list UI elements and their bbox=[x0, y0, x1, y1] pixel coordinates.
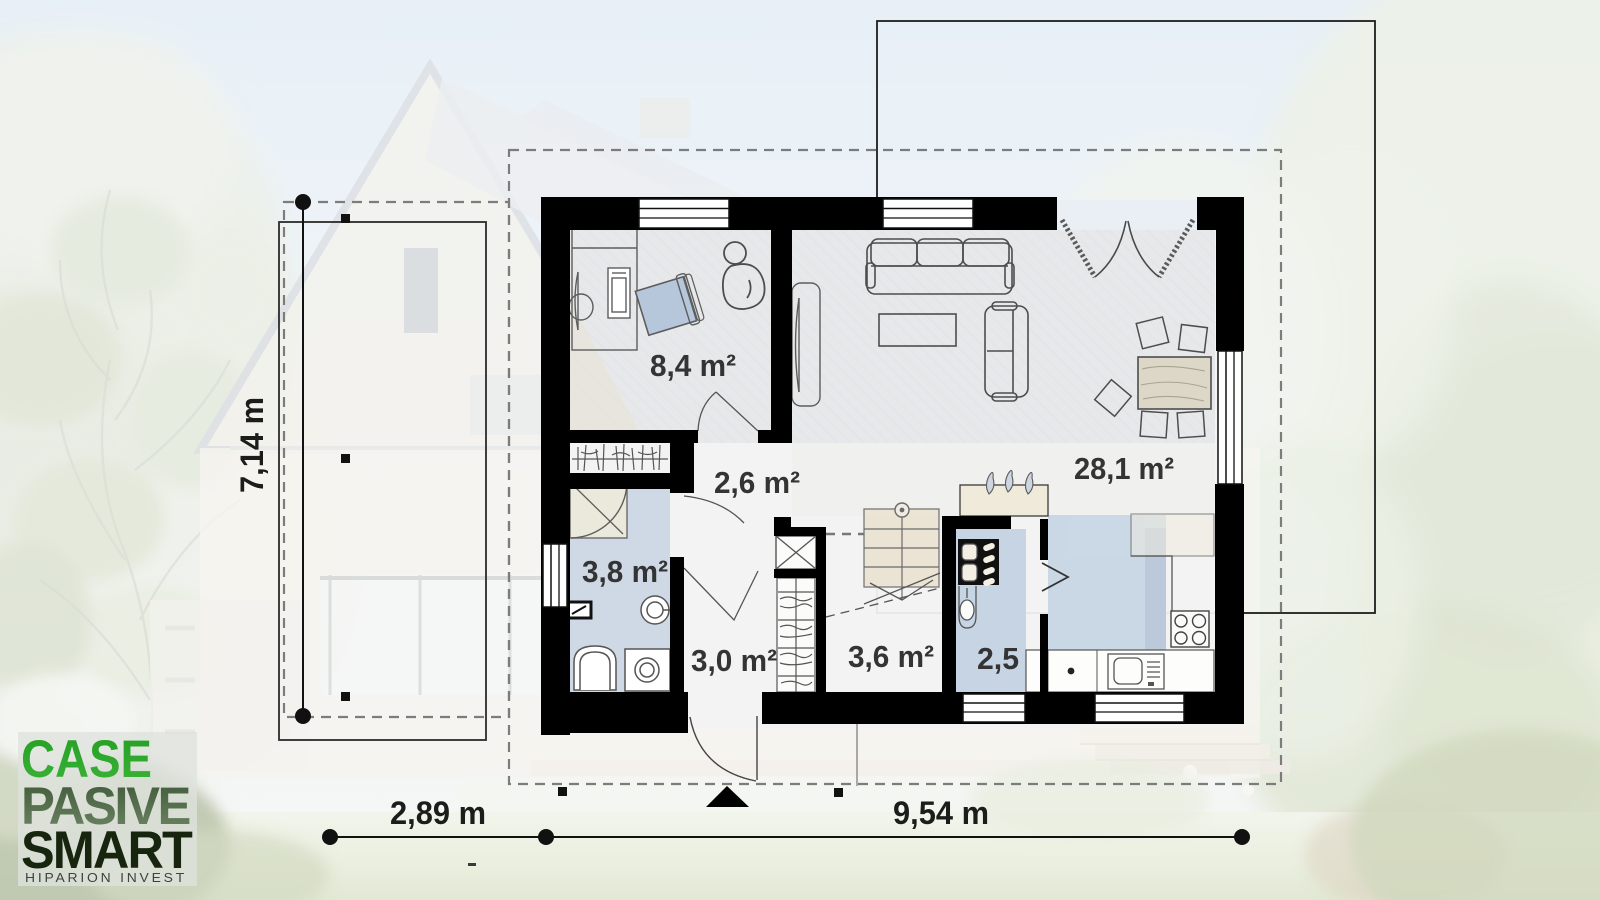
svg-text:9,54 m: 9,54 m bbox=[893, 795, 989, 831]
svg-text:2,6 m²: 2,6 m² bbox=[714, 465, 800, 500]
svg-text:3,0 m²: 3,0 m² bbox=[691, 643, 777, 678]
svg-text:3,8 m²: 3,8 m² bbox=[582, 554, 668, 589]
svg-text:HIPARION INVEST: HIPARION INVEST bbox=[25, 870, 187, 885]
svg-text:7,14 m: 7,14 m bbox=[234, 397, 270, 493]
svg-text:8,4 m²: 8,4 m² bbox=[650, 348, 736, 383]
svg-text:2,89 m: 2,89 m bbox=[390, 795, 486, 831]
svg-text:3,6 m²: 3,6 m² bbox=[848, 639, 934, 674]
svg-text:2,5: 2,5 bbox=[977, 641, 1019, 676]
svg-text:28,1 m²: 28,1 m² bbox=[1074, 451, 1174, 486]
